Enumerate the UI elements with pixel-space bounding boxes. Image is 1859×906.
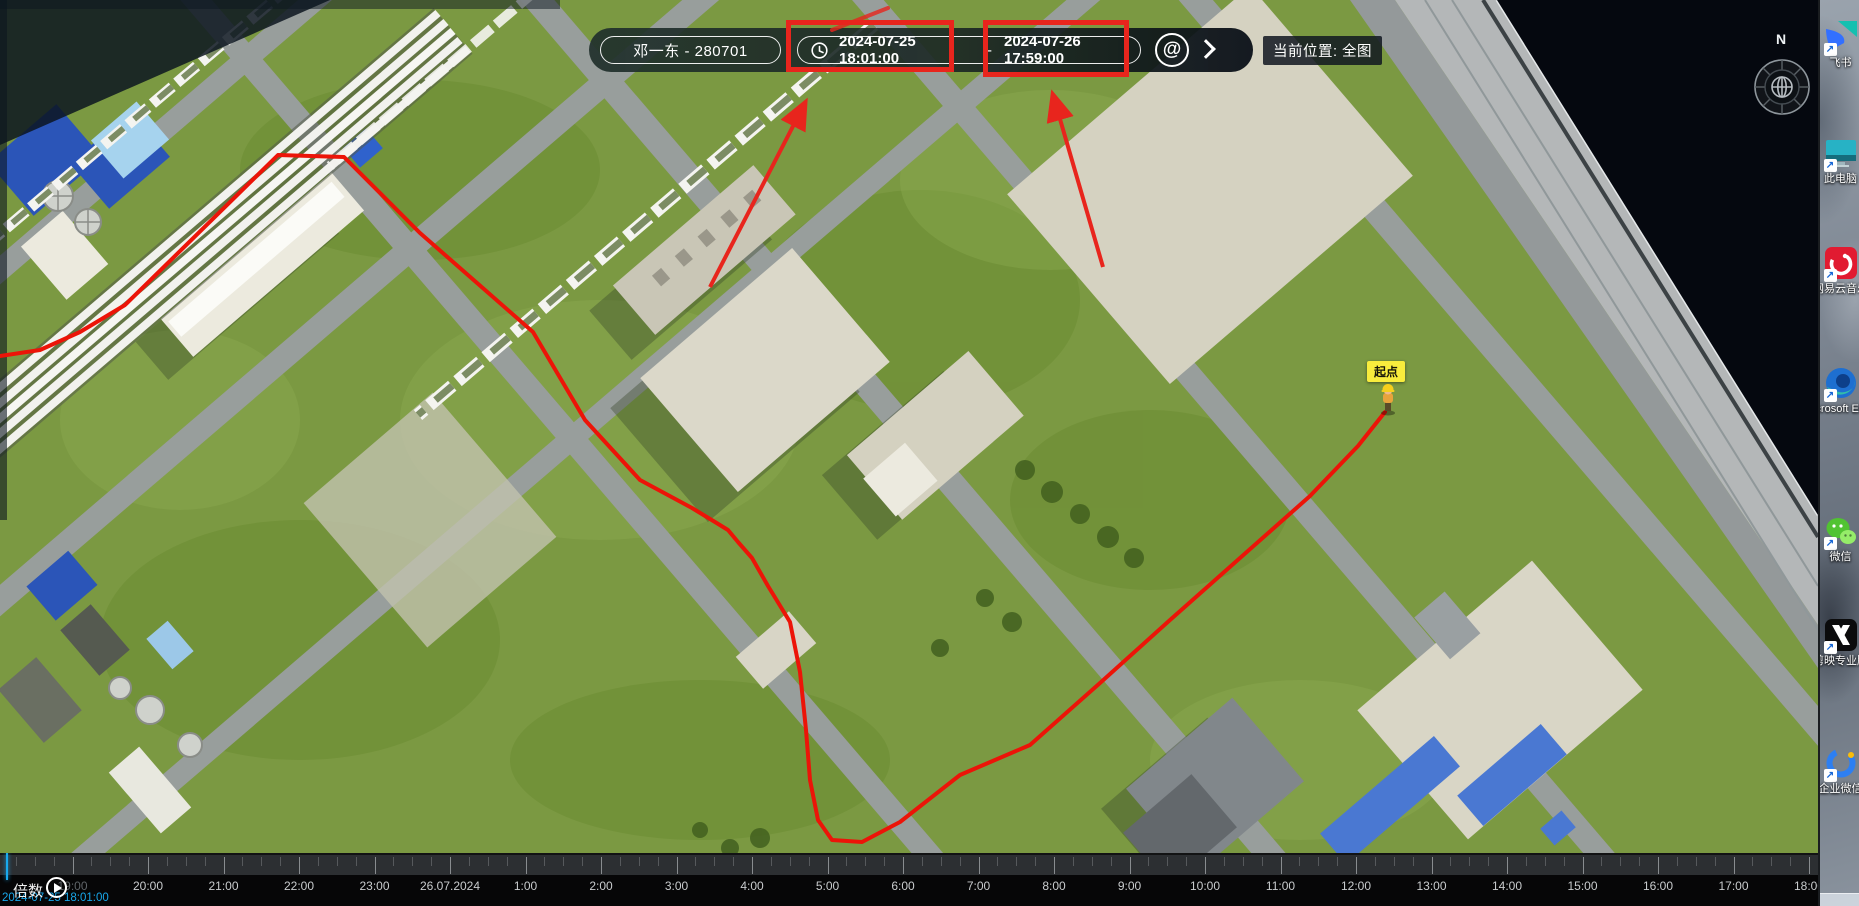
timeline-tick [922,857,923,866]
timeline-hour-label: 2:00 [589,879,612,893]
toolbar: 邓一东 - 280701 2024-07-25 18:01:00 - 2024-… [589,28,1253,72]
timeline-tick [677,857,678,874]
desktop-icon-label: Microsoft Edge [1818,403,1859,416]
timeline-hour-label: 18:00 [1794,879,1818,893]
timeline-tick [1696,857,1697,866]
timeline-hour-label: 20:00 [133,879,163,893]
timeline-hour-label: 11:00 [1266,879,1295,893]
timeline-tick [54,857,55,866]
date-end-field[interactable]: 2024-07-26 17:59:00 [1004,33,1140,67]
timeline-tick [1130,857,1131,874]
timeline-tick [205,857,206,866]
desktop-icon-label: 企业微信 [1818,783,1859,796]
desktop-icon-label: 此电脑 [1818,173,1859,186]
timeline-hour-label: 14:00 [1492,879,1522,893]
date-separator: - [987,42,992,59]
timeline-tick [865,857,866,866]
timeline-tick [1318,857,1319,866]
timeline-tick [1054,857,1055,874]
timeline-tick [393,857,394,866]
timeline-tick [1337,857,1338,866]
timeline-tick [1148,857,1149,866]
timeline-hour-label: 16:00 [1643,879,1673,893]
timeline-tick [375,857,376,874]
timeline-tick [1752,857,1753,866]
compass-control[interactable]: N [1750,55,1814,123]
timeline-tick [261,857,262,866]
desktop-icon-jianying[interactable]: ↗剪映专业版 [1820,618,1859,652]
desktop-icon-feishu[interactable]: ↗飞书 [1820,20,1859,54]
desktop-icon-wechat[interactable]: ↗微信 [1820,514,1859,548]
timeline-tick [639,857,640,866]
timeline-tick [1809,857,1810,874]
chevron-right-button[interactable] [1196,39,1216,59]
timeline-tick [431,857,432,866]
timeline-tick [960,857,961,866]
timeline-tick [1771,857,1772,866]
shortcut-arrow-icon: ↗ [1824,269,1837,282]
timeline-hour-label: 4:00 [740,879,763,893]
desktop-icon-label: 微信 [1818,551,1859,564]
worker-figure-icon [1377,382,1399,416]
timeline-tick [469,857,470,866]
timeline-tick [1469,857,1470,866]
timeline-bar[interactable]: 19:0020:0021:0022:0023:0026.07.20241:002… [0,853,1818,906]
timeline-tick [1507,857,1508,874]
timeline-tick [658,857,659,866]
timeline-tick [1583,857,1584,874]
timeline-tick [714,857,715,866]
timeline-hour-label: 12:00 [1341,879,1371,893]
desktop-area: ↗飞书↗此电脑↗网易云音乐↗Microsoft Edge↗微信↗剪映专业版↗企业… [1818,0,1859,906]
desktop-icon-microsoft-edge[interactable]: ↗Microsoft Edge [1820,366,1859,400]
timeline-tick [544,857,545,866]
timeline-hour-label: 6:00 [891,879,914,893]
timeline-tick [771,857,772,866]
timeline-hour-label: 5:00 [816,879,839,893]
timeline-tick [601,857,602,874]
timeline-tick [148,857,149,874]
timeline-tick [91,857,92,866]
desktop-icon-label: 网易云音乐 [1818,283,1859,296]
timeline-tick [1601,857,1602,866]
timeline-hour-label: 8:00 [1042,879,1065,893]
timeline-hour-label: 15:00 [1567,879,1597,893]
timeline-tick [828,857,829,874]
date-start-field[interactable]: 2024-07-25 18:01:00 [839,33,975,67]
timeline-tick [733,857,734,866]
timeline-tick [1224,857,1225,866]
screen: 起点 邓一东 - 280701 2024-07-25 18:01:00 - [0,0,1859,906]
timeline-tick [1564,857,1565,866]
timeline-tick [997,857,998,866]
timeline-tick [1375,857,1376,866]
timeline-tick [1677,857,1678,866]
timeline-tick [16,857,17,866]
timeline-tick [318,857,319,866]
timeline-tick [1073,857,1074,866]
timeline-hour-label: 17:00 [1718,879,1748,893]
timeline-tick [1715,857,1716,866]
locate-button[interactable]: @ [1155,33,1189,67]
desktop-icon-wecom[interactable]: ↗企业微信 [1820,746,1859,780]
timeline-tick [752,857,753,874]
timeline-tick [1394,857,1395,866]
timeline-tick [1432,857,1433,874]
timeline-hour-label: 26.07.2024 [420,879,480,893]
timeline-playhead[interactable] [6,853,8,880]
compass-dial-icon [1750,55,1814,119]
timeline-tick [242,857,243,866]
timeline-tick [280,857,281,866]
timeline-tick [1526,857,1527,866]
start-point-label: 起点 [1367,361,1405,382]
timeline-tick [790,857,791,866]
timeline-tick [1658,857,1659,874]
timeline-ticks[interactable] [0,853,1818,875]
shortcut-arrow-icon: ↗ [1824,389,1837,402]
at-icon: @ [1163,39,1182,61]
timeline-tick [1488,857,1489,866]
play-button[interactable] [46,877,67,898]
taskbar[interactable] [1820,893,1859,906]
timeline-tick [1016,857,1017,866]
timeline-tick [1281,857,1282,874]
timeline-tick [110,857,111,866]
timeline-tick [356,857,357,866]
timeline-tick [1035,857,1036,866]
timeline-tick [1734,857,1735,874]
timeline-tick [299,857,300,874]
timeline-tick [846,857,847,866]
timeline-tick [337,857,338,866]
timeline-tick [1413,857,1414,866]
shortcut-arrow-icon: ↗ [1824,641,1837,654]
timeline-tick [582,857,583,866]
timeline-tick [224,857,225,874]
timeline-tick [450,857,451,874]
shortcut-arrow-icon: ↗ [1824,159,1837,172]
timeline-tick [1356,857,1357,874]
timeline-tick [1111,857,1112,866]
north-label: N [1776,31,1786,47]
timeline-tick [1186,857,1187,866]
timeline-tick [620,857,621,866]
timeline-hour-label: 13:00 [1416,879,1446,893]
clock-icon [811,42,828,59]
timeline-tick [167,857,168,866]
timeline-tick [488,857,489,866]
timeline-tick [884,857,885,866]
globe-icon [1772,77,1792,97]
timeline-tick [1262,857,1263,866]
date-range-picker[interactable]: 2024-07-25 18:01:00 - 2024-07-26 17:59:0… [797,36,1141,64]
timeline-tick [979,857,980,874]
timeline-hour-label: 1:00 [514,879,537,893]
timeline-tick [1620,857,1621,866]
timeline-tick [35,857,36,866]
timeline-hour-label: 9:00 [1118,879,1141,893]
timeline-hour-label: 23:00 [359,879,389,893]
timeline-hour-label: 3:00 [665,879,688,893]
timeline-tick [73,857,74,874]
timeline-tick [1167,857,1168,866]
timeline-tick [1243,857,1244,866]
timeline-tick [1545,857,1546,866]
timeline-tick [412,857,413,866]
desktop-icon-label: 剪映专业版 [1818,655,1859,668]
map-canvas[interactable] [0,0,1818,853]
timeline-tick [1299,857,1300,866]
shortcut-arrow-icon: ↗ [1824,43,1837,56]
shortcut-arrow-icon: ↗ [1824,769,1837,782]
timeline-tick [1639,857,1640,866]
desktop-icon-label: 飞书 [1818,57,1859,70]
timeline-tick [526,857,527,874]
map-application-window: 起点 邓一东 - 280701 2024-07-25 18:01:00 - [0,0,1818,906]
person-selector[interactable]: 邓一东 - 280701 [600,36,781,64]
timeline-tick [186,857,187,866]
speed-multiplier-label: 倍数 [13,880,43,901]
timeline-hour-label: 10:00 [1190,879,1220,893]
timeline-tick [563,857,564,866]
shortcut-arrow-icon: ↗ [1824,537,1837,550]
desktop-icon-netease-music[interactable]: ↗网易云音乐 [1820,246,1859,280]
timeline-tick [941,857,942,866]
timeline-tick [809,857,810,866]
timeline-hour-label: 22:00 [284,879,314,893]
current-location-label: 当前位置: 全图 [1263,36,1382,65]
timeline-hour-label: 21:00 [208,879,238,893]
desktop-icon-this-pc[interactable]: ↗此电脑 [1820,136,1859,170]
timeline-tick [1092,857,1093,866]
timeline-tick [507,857,508,866]
timeline-tick [1205,857,1206,874]
timeline-tick [129,857,130,866]
timeline-tick [695,857,696,866]
timeline-tick [1790,857,1791,866]
timeline-hour-label: 7:00 [967,879,990,893]
timeline-tick [1450,857,1451,866]
timeline-tick [903,857,904,874]
